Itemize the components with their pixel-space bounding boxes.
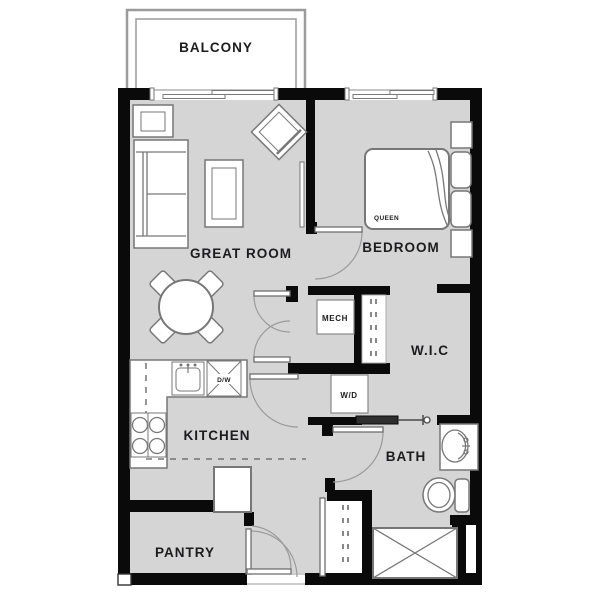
washer-dryer-label: W/D: [340, 391, 357, 400]
wall-segment: [325, 478, 335, 492]
plumbing-chase: [466, 525, 476, 573]
door-pull-knob: [424, 417, 430, 423]
dishwasher: D/W: [207, 361, 241, 396]
mech-label: MECH: [322, 314, 348, 323]
door-leaf: [250, 374, 298, 379]
closet-door-panel: [320, 498, 325, 576]
wall-segment: [244, 512, 254, 526]
wall-segment: [306, 96, 315, 232]
dining-set: [149, 270, 224, 344]
faucet-dot: [194, 364, 197, 367]
wall-segment: [437, 284, 470, 293]
entry-opening: [247, 573, 305, 585]
window-jamb: [274, 88, 278, 100]
bath-label: BATH: [386, 449, 427, 464]
dining-table: [159, 280, 213, 334]
sliding-sash: [353, 95, 397, 99]
wall-segment: [327, 490, 372, 501]
nightstand: [451, 230, 472, 257]
wall-segment: [118, 88, 152, 100]
balcony-inner-rail: [136, 19, 296, 94]
balcony: BALCONY: [127, 10, 305, 94]
faucet-dot: [180, 364, 183, 367]
sofa: [134, 140, 188, 248]
range-cooktop: [131, 413, 166, 457]
pillow: [451, 191, 471, 227]
window-jamb: [150, 88, 154, 100]
closet-shelf: [362, 295, 386, 363]
great-room-label: GREAT ROOM: [190, 246, 292, 261]
floor-plan: BALCONY: [0, 0, 600, 600]
kitchen-sink: [172, 362, 204, 395]
dishwasher-label: D/W: [217, 377, 231, 384]
corner-column: [118, 574, 131, 585]
pillow: [451, 152, 471, 188]
wall-segment: [308, 286, 390, 295]
coffee-table-top: [212, 168, 236, 219]
kitchen-label: KITCHEN: [184, 428, 251, 443]
vanity-sink: [440, 424, 478, 470]
door-leaf: [315, 227, 362, 232]
wic-label: W.I.C: [411, 343, 449, 358]
door-leaf: [254, 357, 290, 362]
pantry-label: PANTRY: [155, 545, 215, 560]
door-leaf: [333, 427, 383, 432]
shower-tub: [373, 528, 457, 578]
wall-segment: [308, 417, 362, 425]
sliding-sash: [390, 91, 434, 95]
toilet: [423, 478, 469, 512]
wall-segment: [470, 96, 482, 585]
pantry-door-leaf: [247, 569, 291, 574]
bedroom-window: [345, 88, 437, 100]
door-leaf: [254, 291, 290, 296]
entry-door-leaf: [246, 529, 251, 574]
sliding-sash: [163, 95, 225, 99]
window-jamb: [345, 88, 349, 100]
balcony-label: BALCONY: [179, 40, 253, 55]
kitchen-island: [214, 467, 251, 512]
wic-hanging-rod: [362, 295, 386, 363]
linen-closet: [320, 498, 362, 576]
sliding-door-panel: [356, 416, 398, 424]
wall-segment: [322, 425, 333, 436]
balcony-sliding-door: [150, 88, 278, 100]
toilet-tank: [455, 479, 469, 512]
wall-segment: [362, 501, 372, 573]
sliding-sash: [212, 91, 274, 95]
end-table-top: [141, 112, 165, 131]
wall-segment: [118, 573, 247, 585]
closet-interior: [325, 501, 362, 573]
wall-segment: [288, 363, 390, 374]
nightstand: [451, 122, 472, 148]
floor-plan-canvas: BALCONY: [0, 0, 600, 600]
media-console: [300, 162, 304, 227]
wall-segment: [354, 295, 362, 365]
bedroom-label: BEDROOM: [362, 240, 440, 255]
bed-size-label: QUEEN: [374, 215, 399, 222]
